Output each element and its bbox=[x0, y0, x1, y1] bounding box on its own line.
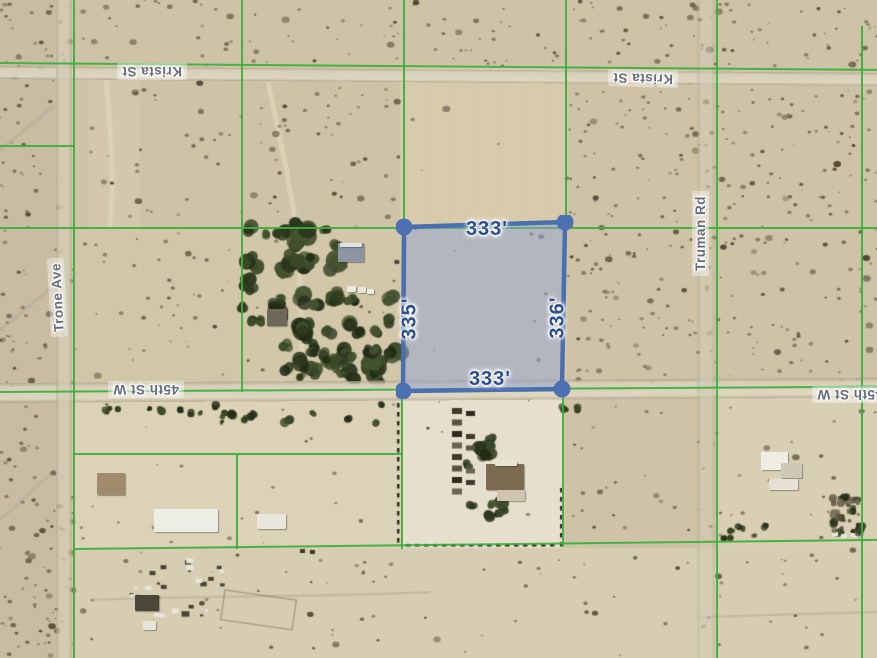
building bbox=[340, 243, 362, 247]
parcel-boundary-line bbox=[73, 0, 75, 658]
parcel-boundary-line bbox=[241, 0, 243, 392]
parcel-boundary-line bbox=[236, 455, 238, 549]
building bbox=[135, 595, 159, 611]
building bbox=[257, 514, 286, 529]
measurement-right: 336' bbox=[547, 287, 570, 349]
parcel-boundary-line bbox=[73, 453, 403, 455]
street-label-45th-st-w-west: 45th St W bbox=[108, 381, 184, 398]
building bbox=[367, 289, 374, 294]
road-truman-rd bbox=[697, 0, 715, 658]
parcel-corner-handle[interactable] bbox=[396, 219, 413, 236]
building bbox=[154, 509, 218, 532]
building bbox=[143, 621, 156, 630]
building bbox=[267, 309, 287, 326]
building bbox=[781, 463, 802, 478]
parcel-boundary-line bbox=[716, 0, 718, 658]
parcel-boundary-line bbox=[0, 145, 74, 147]
building bbox=[97, 473, 125, 495]
parcel-boundary-line bbox=[562, 391, 564, 547]
parcel-boundary-line bbox=[401, 391, 403, 549]
parcel-corner-handle[interactable] bbox=[554, 381, 571, 398]
measurement-left: 335' bbox=[399, 288, 422, 350]
parcel-polygon[interactable] bbox=[403, 222, 565, 391]
parcel-boundary-line bbox=[861, 26, 863, 658]
map-viewport[interactable]: 333' 333' 335' 336' Krista St Krista St … bbox=[0, 0, 877, 658]
building bbox=[497, 490, 525, 501]
building bbox=[769, 479, 798, 490]
building bbox=[495, 461, 517, 466]
building bbox=[358, 287, 366, 293]
measurement-bottom: 333' bbox=[459, 368, 521, 391]
street-label-krista-st-east: Krista St bbox=[608, 69, 678, 88]
street-label-45th-st-w-east: 45th St W bbox=[812, 386, 877, 403]
parcel-boundary-line bbox=[565, 0, 567, 224]
street-label-krista-st-west: Krista St bbox=[117, 63, 187, 80]
parcel-boundary-line bbox=[403, 0, 405, 228]
measurement-top: 333' bbox=[456, 218, 518, 241]
building bbox=[347, 286, 356, 292]
building bbox=[486, 464, 524, 490]
street-label-truman-rd: Truman Rd bbox=[692, 191, 709, 276]
